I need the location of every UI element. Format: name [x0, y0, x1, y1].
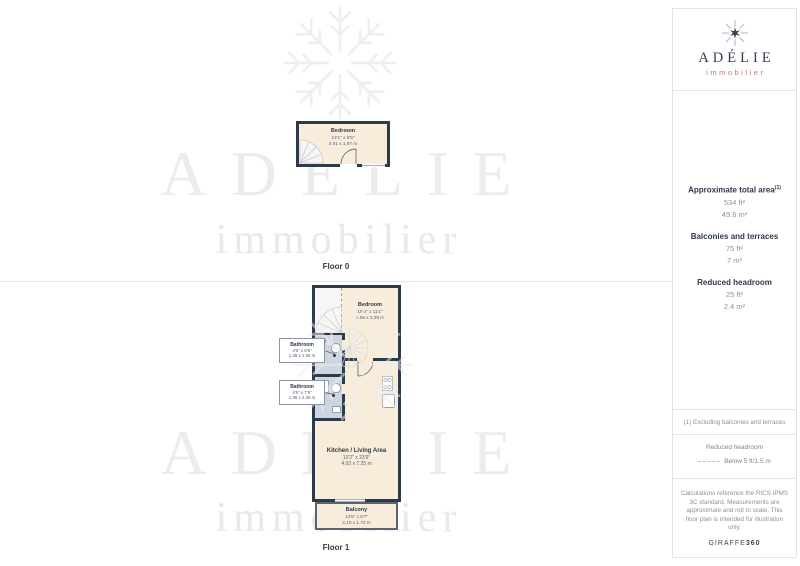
giraffe360-suffix: 360: [746, 540, 761, 547]
room-dim-metric: 4.01 x 1.97 m: [299, 141, 387, 147]
bathroom1-callout: Bathroom 4'6" x 6'6" 1.38 x 1.98 m: [279, 338, 325, 363]
room-name: Kitchen / Living Area: [315, 448, 398, 455]
brand-logo-box: ADÉLIE immobilier: [672, 8, 797, 91]
floorplan-page: ADÉLIE immobilier ADÉLIE immobilier Bedr…: [0, 0, 800, 566]
disclaimer-text: Calculations reference the RICS IPMS 3C …: [680, 490, 789, 533]
sink-icon: [332, 406, 341, 413]
kitchen-sink-icon: [382, 394, 395, 408]
watermark-brand-tagline: immobilier: [0, 219, 672, 261]
legend-row: Below 5 ft/1.5 m: [673, 458, 796, 465]
floor0-label: Floor 0: [0, 262, 672, 271]
balconies-label: Balconies and terraces: [673, 232, 796, 242]
legend-label: Below 5 ft/1.5 m: [724, 458, 771, 465]
brand-tagline: immobilier: [673, 68, 796, 77]
headroom-label: Reduced headroom: [673, 278, 796, 288]
snowflake-watermark-icon: [277, 2, 403, 124]
toilet-icon: [331, 383, 341, 393]
room-dim-metric: 4.03 x 7.25 m: [315, 461, 398, 467]
room-dim-metric: 1.38 x 1.98 m: [280, 353, 324, 359]
total-area-label: Approximate total area: [688, 186, 775, 195]
area-info-box: Approximate total area(1) 534 ft² 49.6 m…: [672, 90, 797, 410]
giraffe360-brand: GIRAFFE360: [680, 540, 789, 547]
window-line-icon: [362, 165, 385, 166]
balconies-metric: 7 m²: [673, 255, 796, 266]
balcony-label: Balcony 13'5" x 5'7" 4.10 x 1.72 m: [317, 507, 396, 526]
footnote-box: (1) Excluding balconies and terraces: [672, 409, 797, 435]
legend-title: Reduced headroom: [673, 444, 796, 451]
total-area-metric: 49.6 m²: [673, 209, 796, 220]
kitchen-living-label: Kitchen / Living Area 13'2" x 23'9" 4.03…: [315, 448, 398, 467]
footnote-text: (1) Excluding balconies and terraces: [684, 419, 786, 426]
hob-icon: [382, 376, 393, 391]
snowflake-logo-icon: [673, 20, 796, 46]
stairwell-stair-icon: [315, 288, 342, 333]
dashed-line-icon: [698, 461, 720, 462]
total-area-footnote-marker: (1): [775, 185, 781, 191]
disclaimer-box: Calculations reference the RICS IPMS 3C …: [672, 478, 797, 558]
callout-dot: [333, 354, 336, 357]
total-area-imperial: 534 ft²: [673, 197, 796, 208]
floor1-label: Floor 1: [0, 543, 672, 552]
room-dim-metric: 1.38 x 2.36 m: [280, 395, 324, 401]
giraffe360-name: GIRAFFE: [708, 540, 745, 547]
floor1-bedroom-label: Bedroom 10'0" x 11'1" 3.06 x 3.39 m: [342, 302, 398, 321]
floor0-bedroom-label: Bedroom 13'1" x 6'5" 4.01 x 1.97 m: [299, 128, 387, 147]
floor-section-divider: [0, 281, 673, 282]
callout-dot: [332, 394, 335, 397]
bathroom2-callout: Bathroom 4'6" x 7'9" 1.38 x 2.36 m: [279, 380, 325, 405]
balconies-imperial: 75 ft²: [673, 243, 796, 254]
legend-box: Reduced headroom Below 5 ft/1.5 m: [672, 434, 797, 479]
room-dim-metric: 3.06 x 3.39 m: [342, 315, 398, 321]
room-dim-metric: 4.10 x 1.72 m: [317, 520, 396, 526]
balconies-group: Balconies and terraces 75 ft² 7 m²: [673, 232, 796, 266]
wall: [373, 358, 398, 361]
headroom-metric: 2.4 m²: [673, 301, 796, 312]
headroom-group: Reduced headroom 25 ft² 2.4 m²: [673, 278, 796, 312]
wall: [315, 418, 345, 421]
spiral-stair-icon: [329, 328, 369, 368]
headroom-imperial: 25 ft²: [673, 289, 796, 300]
total-area-heading: Approximate total area(1): [673, 183, 796, 196]
total-area-group: Approximate total area(1) 534 ft² 49.6 m…: [673, 183, 796, 220]
balcony-area: Balcony 13'5" x 5'7" 4.10 x 1.72 m: [315, 502, 398, 530]
door-opening: [340, 164, 357, 167]
brand-name: ADÉLIE: [673, 51, 796, 66]
floor0-plan: Bedroom 13'1" x 6'5" 4.01 x 1.97 m: [296, 121, 390, 167]
door-opening: [342, 384, 345, 394]
door-arc-icon: [340, 147, 357, 164]
